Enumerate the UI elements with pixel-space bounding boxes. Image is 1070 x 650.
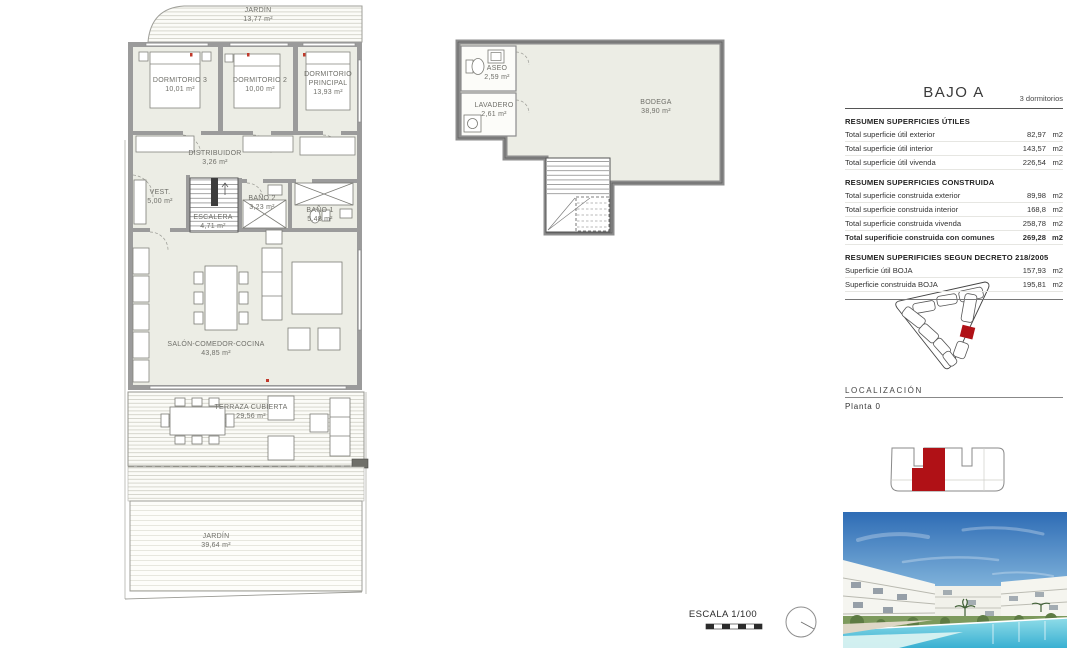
room-label-jardin-top: JARDÍN 13,77 m²	[243, 6, 273, 24]
basement-staircase	[546, 158, 610, 232]
kitchen-cabinets	[133, 248, 149, 382]
room-label-aseo: ASEO 2,59 m²	[484, 64, 509, 82]
section-heading: RESUMEN SUPERIFICIES SEGUN DECRETO 218/2…	[845, 253, 1063, 262]
unit-subtitle: 3 dormitorios	[1020, 94, 1063, 103]
room-label-terraza: TERRAZA CUBIERTA 29,56 m²	[215, 403, 288, 421]
room-label-jardin-bajo: JARDÍN 39,64 m²	[201, 532, 231, 550]
scale-label: ESCALA 1/100	[668, 609, 778, 620]
room-label-escalera: ESCALERA 4,71 m²	[193, 213, 232, 231]
scale-block: ESCALA 1/100	[668, 609, 778, 620]
surface-summary-table: BAJO A 3 dormitorios RESUMEN SUPERFICIES…	[845, 84, 1063, 300]
room-label-bano-2: BAÑO 2 3,23 m²	[248, 194, 275, 212]
room-label-lavadero: LAVADERO 2,61 m²	[474, 101, 513, 119]
room-label-dormitorio-3: DORMITORIO 3 10,01 m²	[153, 76, 207, 94]
room-label-bano-1: BAÑO 1 5,48 m²	[306, 206, 333, 224]
section-heading: RESUMEN SUPERFICIES ÚTILES	[845, 117, 1063, 126]
localizacion-heading: LOCALIZACIÓN	[845, 386, 1063, 395]
table-row: Total superficie construida exterior 89,…	[845, 189, 1063, 203]
room-label-salon: SALÓN-COMEDOR-COCINA 43,85 m²	[167, 340, 264, 358]
table-row: Superficie útil BOJA 157,93 m2	[845, 264, 1063, 278]
divider	[845, 299, 1063, 300]
localizacion-block: LOCALIZACIÓN Planta 0	[845, 386, 1063, 411]
divider	[845, 108, 1063, 109]
table-row: Total superficie útil vivenda 226,54 m2	[845, 156, 1063, 170]
table-row: Total superficie útil exterior 82,97 m2	[845, 128, 1063, 142]
room-label-bodega: BODEGA 38,90 m²	[640, 98, 671, 116]
section-heading: RESUMEN SUPERFICIES CONSTRUIDA	[845, 178, 1063, 187]
planta-label: Planta 0	[845, 402, 1063, 411]
divider	[845, 397, 1063, 398]
elevation-diagram	[891, 448, 1004, 491]
table-row: Total superficie construida vivenda 258,…	[845, 217, 1063, 231]
table-row-total: Total superificie construida con comunes…	[845, 231, 1063, 245]
room-label-dormitorio-2: DORMITORIO 2 10,00 m²	[233, 76, 287, 94]
dining-set	[194, 266, 248, 330]
plan-sheet: JARDÍN 13,77 m² DORMITORIO 3 10,01 m² DO…	[0, 0, 1070, 650]
table-row: Total superficie útil interior 143,57 m2	[845, 142, 1063, 156]
north-indicator	[786, 607, 816, 637]
building-photo	[843, 512, 1067, 648]
room-label-vestidor: VEST. 5,00 m²	[147, 188, 172, 206]
room-label-principal: DORMITORIO PRINCIPAL 13,93 m²	[296, 70, 360, 98]
garden-bottom	[130, 501, 362, 591]
elevation-unit-marker	[912, 448, 945, 491]
wardrobes	[136, 136, 355, 155]
scale-bar	[706, 624, 762, 629]
table-row: Total superficie construida interior 168…	[845, 203, 1063, 217]
table-row: Superficie construida BOJA 195,81 m2	[845, 278, 1063, 292]
room-label-distribuidor: DISTRIBUIDOR 3,26 m²	[188, 149, 241, 167]
